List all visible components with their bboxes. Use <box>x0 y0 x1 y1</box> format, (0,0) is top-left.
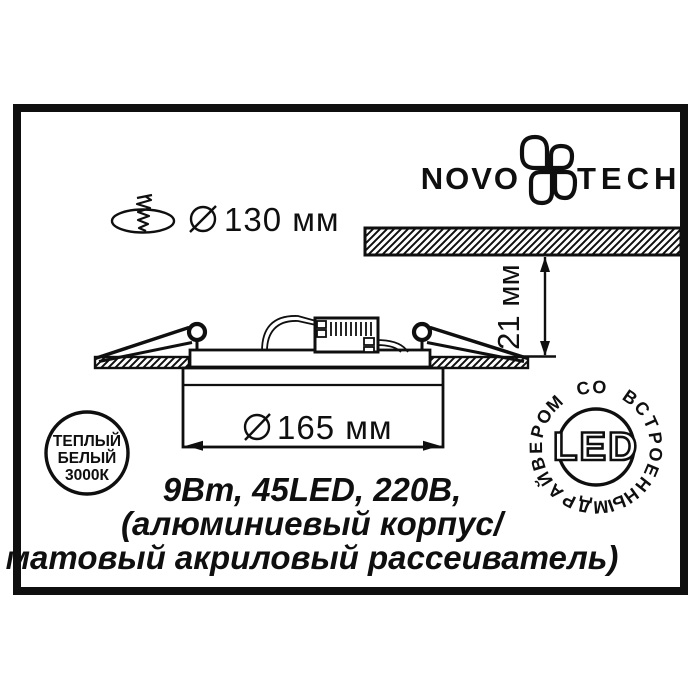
terminal-icon <box>317 321 326 328</box>
led-ring-char: М <box>593 496 610 517</box>
drawing-canvas: 130 мм NOVO TECH 21 мм <box>0 0 700 700</box>
protrusion-dimension: 21 мм <box>491 257 556 357</box>
spec-drawing: 130 мм NOVO TECH 21 мм <box>0 0 700 700</box>
terminal-icon <box>364 347 374 352</box>
clip-pivot-icon <box>414 324 430 340</box>
protrusion-label: 21 мм <box>491 264 526 350</box>
led-driver-box <box>315 318 378 352</box>
ceiling-section-hatch <box>365 228 681 255</box>
spec-line1: 9Вт, 45LED, 220В, <box>163 471 462 508</box>
novotech-flower-icon <box>522 137 575 203</box>
terminal-icon <box>364 338 374 345</box>
warm-white-line3: 3000К <box>65 467 109 484</box>
warm-white-badge: ТЕПЛЫЙ БЕЛЫЙ 3000К <box>46 412 128 494</box>
spec-line2: (алюминиевый корпус/ <box>121 505 507 542</box>
led-ring-char: Р <box>645 431 667 446</box>
cutout-diameter-dimension: 130 мм <box>190 201 340 238</box>
arrow-up-icon <box>540 257 550 272</box>
led-ring-char: О <box>645 446 667 462</box>
arrow-down-icon <box>540 341 550 356</box>
clip-pivot-icon <box>189 324 205 340</box>
screw-in-hole-icon <box>112 195 174 233</box>
diameter-icon <box>190 206 216 232</box>
led-label: LED <box>553 425 639 469</box>
led-ring-char: Д <box>576 495 593 517</box>
led-ring-char: С <box>575 377 592 399</box>
mounting-plate <box>190 350 430 367</box>
warm-white-line1: ТЕПЛЫЙ <box>53 432 121 450</box>
warm-white-line2: БЕЛЫЙ <box>58 449 117 467</box>
panel-diameter-label: 165 мм <box>277 409 393 446</box>
screw-icon <box>137 195 152 231</box>
led-ring-char: Е <box>526 442 546 454</box>
fixture-cross-section: 165 мм <box>95 316 528 451</box>
led-badge: LED ДРАЙВЕРОМ СО ВСТРОЕННЫМ <box>526 377 666 518</box>
led-ring-char: О <box>592 377 607 398</box>
cutout-diameter-label: 130 мм <box>224 201 340 238</box>
led-ring-char: В <box>527 455 550 473</box>
brand-name-left: NOVO <box>421 161 520 196</box>
brand-name-right: TECH <box>577 161 681 196</box>
novotech-logo: NOVO TECH <box>421 137 682 203</box>
terminal-icon <box>317 330 326 337</box>
spec-line3: матовый акриловый рассеиватель) <box>6 539 619 576</box>
